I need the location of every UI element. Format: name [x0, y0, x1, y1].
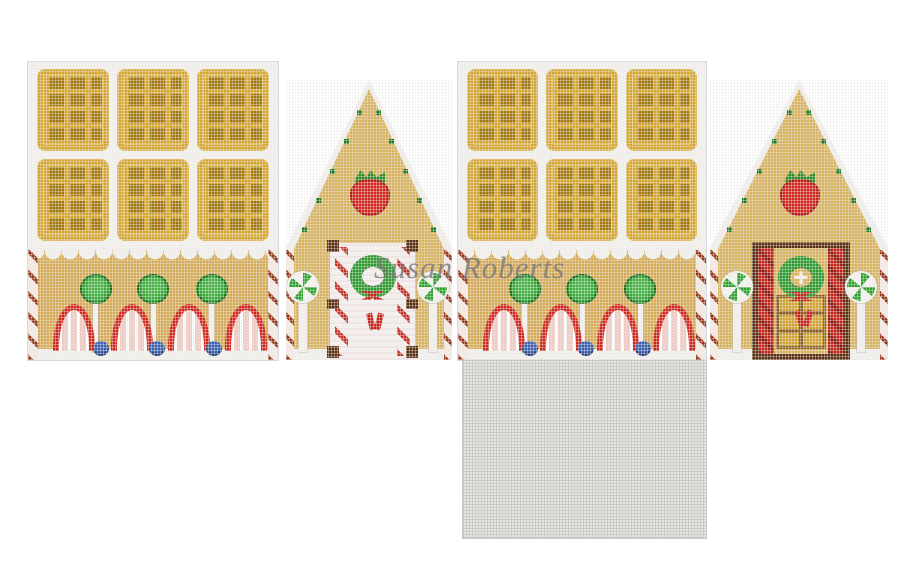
blueberry — [206, 341, 222, 356]
candy-red-jamb — [758, 248, 774, 354]
candy-stripe-edge — [696, 250, 706, 360]
candy-stripe-edge — [28, 250, 38, 360]
icing-dot — [376, 110, 381, 115]
wreath-bow — [361, 291, 385, 300]
strawberry-arch — [225, 304, 267, 351]
blueberry — [635, 341, 651, 356]
waffle-tile — [468, 70, 537, 150]
wreath — [778, 256, 824, 299]
strawberry-fruit — [780, 179, 820, 216]
peppermint-candy — [723, 273, 751, 301]
icing-dot — [757, 169, 762, 174]
waffle-tile — [118, 160, 188, 240]
lollipop-candy — [624, 274, 656, 304]
door-frame-post — [327, 299, 339, 309]
candy-stripe-edge — [286, 250, 294, 360]
strawberry-arch — [653, 304, 695, 351]
gable-panel-front — [286, 80, 452, 360]
waffle-roof-section — [28, 62, 278, 250]
waffle-tile — [547, 160, 616, 240]
blueberry — [522, 341, 538, 356]
icing-dot — [836, 169, 841, 174]
peppermint-post — [299, 299, 307, 352]
icing-dot — [417, 198, 422, 203]
waffle-tile — [627, 160, 696, 240]
waffle-roof-section — [458, 62, 706, 250]
lollipop-candy — [137, 274, 169, 304]
waffle-tile — [118, 70, 188, 150]
lollipop-candy — [196, 274, 228, 304]
icing-dot — [851, 198, 856, 203]
window-pane — [779, 333, 799, 346]
door-frame-post — [406, 346, 418, 358]
icing-dot — [806, 110, 811, 115]
door-frame-post — [327, 240, 339, 252]
strawberry — [350, 170, 390, 216]
needlepoint-canvas-scan: Susan Roberts — [0, 0, 918, 574]
icing-dot — [302, 227, 307, 232]
side-wall-panel-left — [28, 62, 278, 360]
icing-dot — [357, 110, 362, 115]
candy-red-jamb — [828, 248, 844, 354]
icing-dot — [821, 139, 826, 144]
waffle-tile — [38, 70, 108, 150]
icing-dot — [772, 139, 777, 144]
waffle-tile — [198, 70, 268, 150]
blueberry — [149, 341, 165, 356]
peppermint-post — [857, 299, 865, 352]
wreath-ribbon — [374, 313, 384, 331]
peppermint-post — [733, 299, 741, 352]
window-pane — [803, 333, 823, 346]
candy-stripe-edge — [880, 250, 888, 360]
watermark-text: Susan Roberts — [374, 250, 565, 286]
side-wall-panel-right — [458, 62, 706, 360]
icing-dot — [403, 169, 408, 174]
icing-dot — [389, 139, 394, 144]
waffle-tile — [198, 160, 268, 240]
icing-dot — [330, 169, 335, 174]
door-frame-post — [406, 299, 418, 309]
icing-dot — [316, 198, 321, 203]
strawberry — [780, 170, 820, 216]
blueberry — [578, 341, 594, 356]
icing-dot — [344, 139, 349, 144]
waffle-tile — [547, 70, 616, 150]
gable-panel-back — [710, 80, 888, 360]
icing-dot — [787, 110, 792, 115]
candy-stripe-edge — [710, 250, 718, 360]
icing-dot — [866, 227, 871, 232]
blueberry — [93, 341, 109, 356]
waffle-tile — [38, 160, 108, 240]
lollipop-candy — [566, 274, 598, 304]
back-door — [752, 242, 850, 360]
peppermint-post — [429, 299, 437, 352]
candy-stripe-edge — [268, 250, 278, 360]
lollipop-candy — [80, 274, 112, 304]
waffle-tile — [468, 160, 537, 240]
strawberry-fruit — [350, 179, 390, 216]
door-frame-post — [327, 346, 339, 358]
peppermint-candy — [289, 273, 317, 301]
icing-dot — [727, 227, 732, 232]
icing-dot — [742, 198, 747, 203]
icing-scallop — [28, 248, 278, 263]
base-panel — [462, 358, 707, 539]
peppermint-candy — [847, 273, 875, 301]
icing-dot — [431, 227, 436, 232]
gingerbread-wall-section — [28, 250, 278, 360]
wreath-center-flower — [795, 271, 808, 284]
waffle-tile — [627, 70, 696, 150]
